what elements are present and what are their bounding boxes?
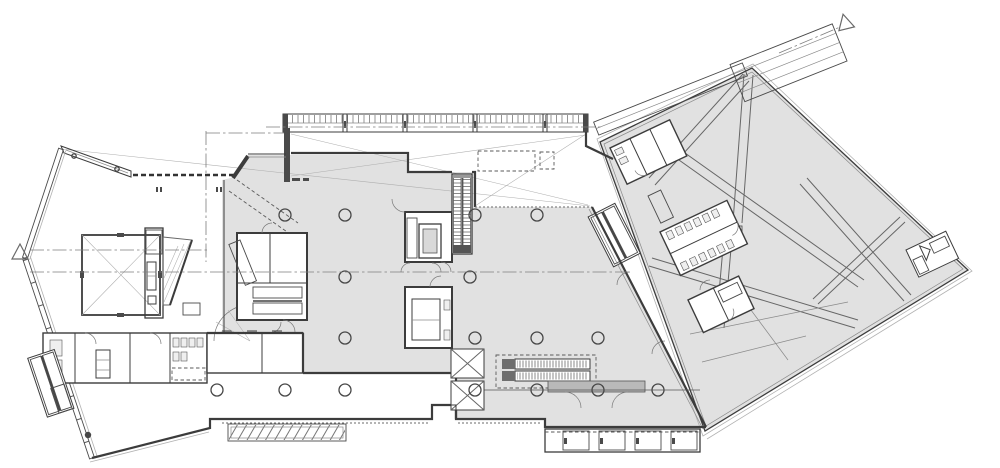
floor-plan-canvas: [0, 0, 1000, 468]
raked-seating: [163, 237, 192, 305]
mullion-marks: [156, 187, 222, 192]
stair-core: [229, 223, 307, 332]
column: [279, 384, 291, 396]
hall-steps: [183, 303, 200, 315]
column: [211, 384, 223, 396]
section-marker-left: [12, 244, 28, 259]
west-wedge-canopy: [61, 146, 131, 177]
canopy-end-post: [284, 128, 290, 182]
skylight-outline-b: [540, 152, 554, 169]
exterior-stairs: [545, 429, 700, 452]
column-dot: [85, 432, 91, 438]
skylight-outline-a: [478, 151, 535, 171]
elevator-car: [423, 229, 437, 253]
south-exterior: [228, 424, 700, 452]
floor-plan-drawing: [0, 0, 1000, 468]
west-facade-upper: [23, 148, 66, 260]
column: [339, 384, 351, 396]
ramp-hatch: [228, 424, 346, 441]
equipment: [96, 350, 110, 378]
square-hall: [80, 233, 200, 317]
